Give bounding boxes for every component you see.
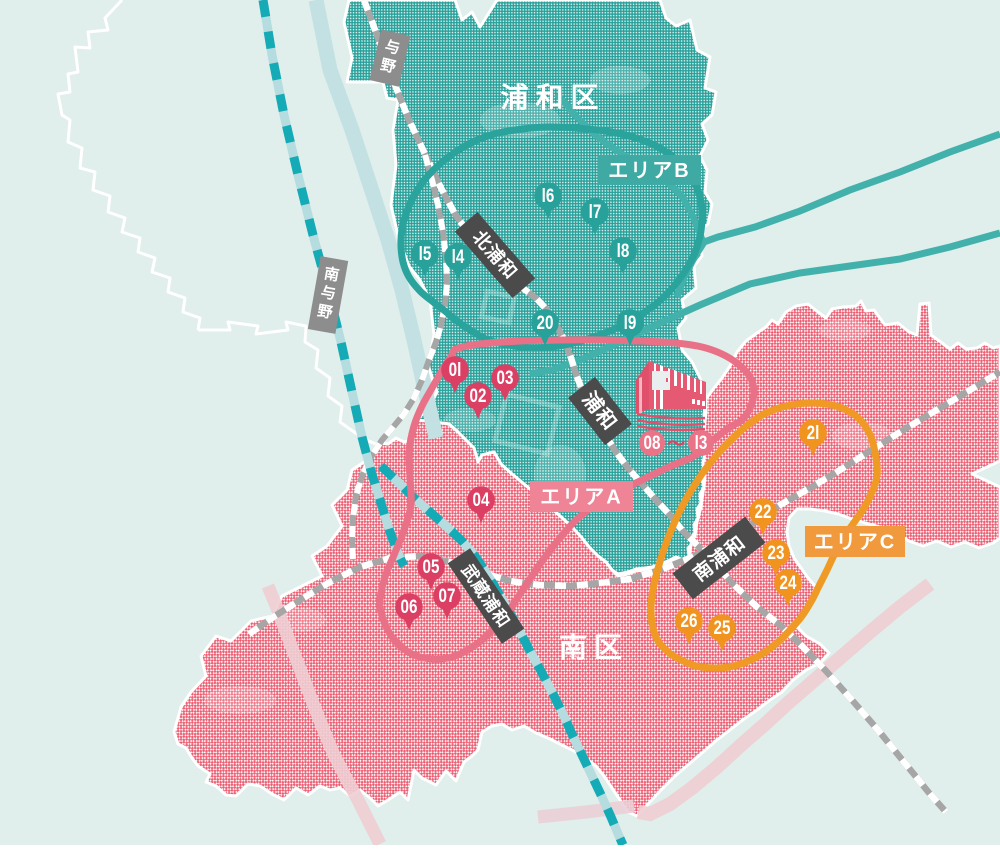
svg-text:l9: l9: [624, 311, 637, 333]
svg-text:05: 05: [423, 555, 440, 577]
svg-text:22: 22: [755, 500, 772, 522]
svg-text:0l: 0l: [449, 358, 462, 380]
svg-text:26: 26: [681, 609, 698, 631]
svg-text:03: 03: [497, 366, 514, 388]
svg-text:浦和区: 浦和区: [500, 82, 605, 113]
svg-text:l8: l8: [617, 239, 630, 261]
svg-text:02: 02: [470, 384, 487, 406]
svg-text:08: 08: [644, 431, 661, 453]
svg-text:l5: l5: [419, 242, 432, 264]
svg-text:エリアC: エリアC: [814, 532, 896, 554]
svg-text:エリアB: エリアB: [608, 160, 690, 182]
svg-text:20: 20: [537, 311, 554, 333]
svg-text:04: 04: [473, 488, 490, 510]
svg-text:南区: 南区: [559, 632, 629, 663]
svg-text:エリアA: エリアA: [540, 487, 622, 509]
svg-text:24: 24: [780, 571, 797, 593]
svg-text:l7: l7: [589, 200, 602, 222]
svg-text:25: 25: [714, 616, 731, 638]
svg-text:l4: l4: [452, 245, 465, 267]
svg-text:2l: 2l: [807, 421, 820, 443]
svg-text:23: 23: [768, 541, 785, 563]
svg-text:07: 07: [439, 584, 456, 606]
svg-text:06: 06: [401, 595, 418, 617]
svg-text:l6: l6: [542, 184, 555, 206]
svg-text:l3: l3: [695, 431, 708, 453]
svg-text:〜: 〜: [667, 434, 685, 454]
